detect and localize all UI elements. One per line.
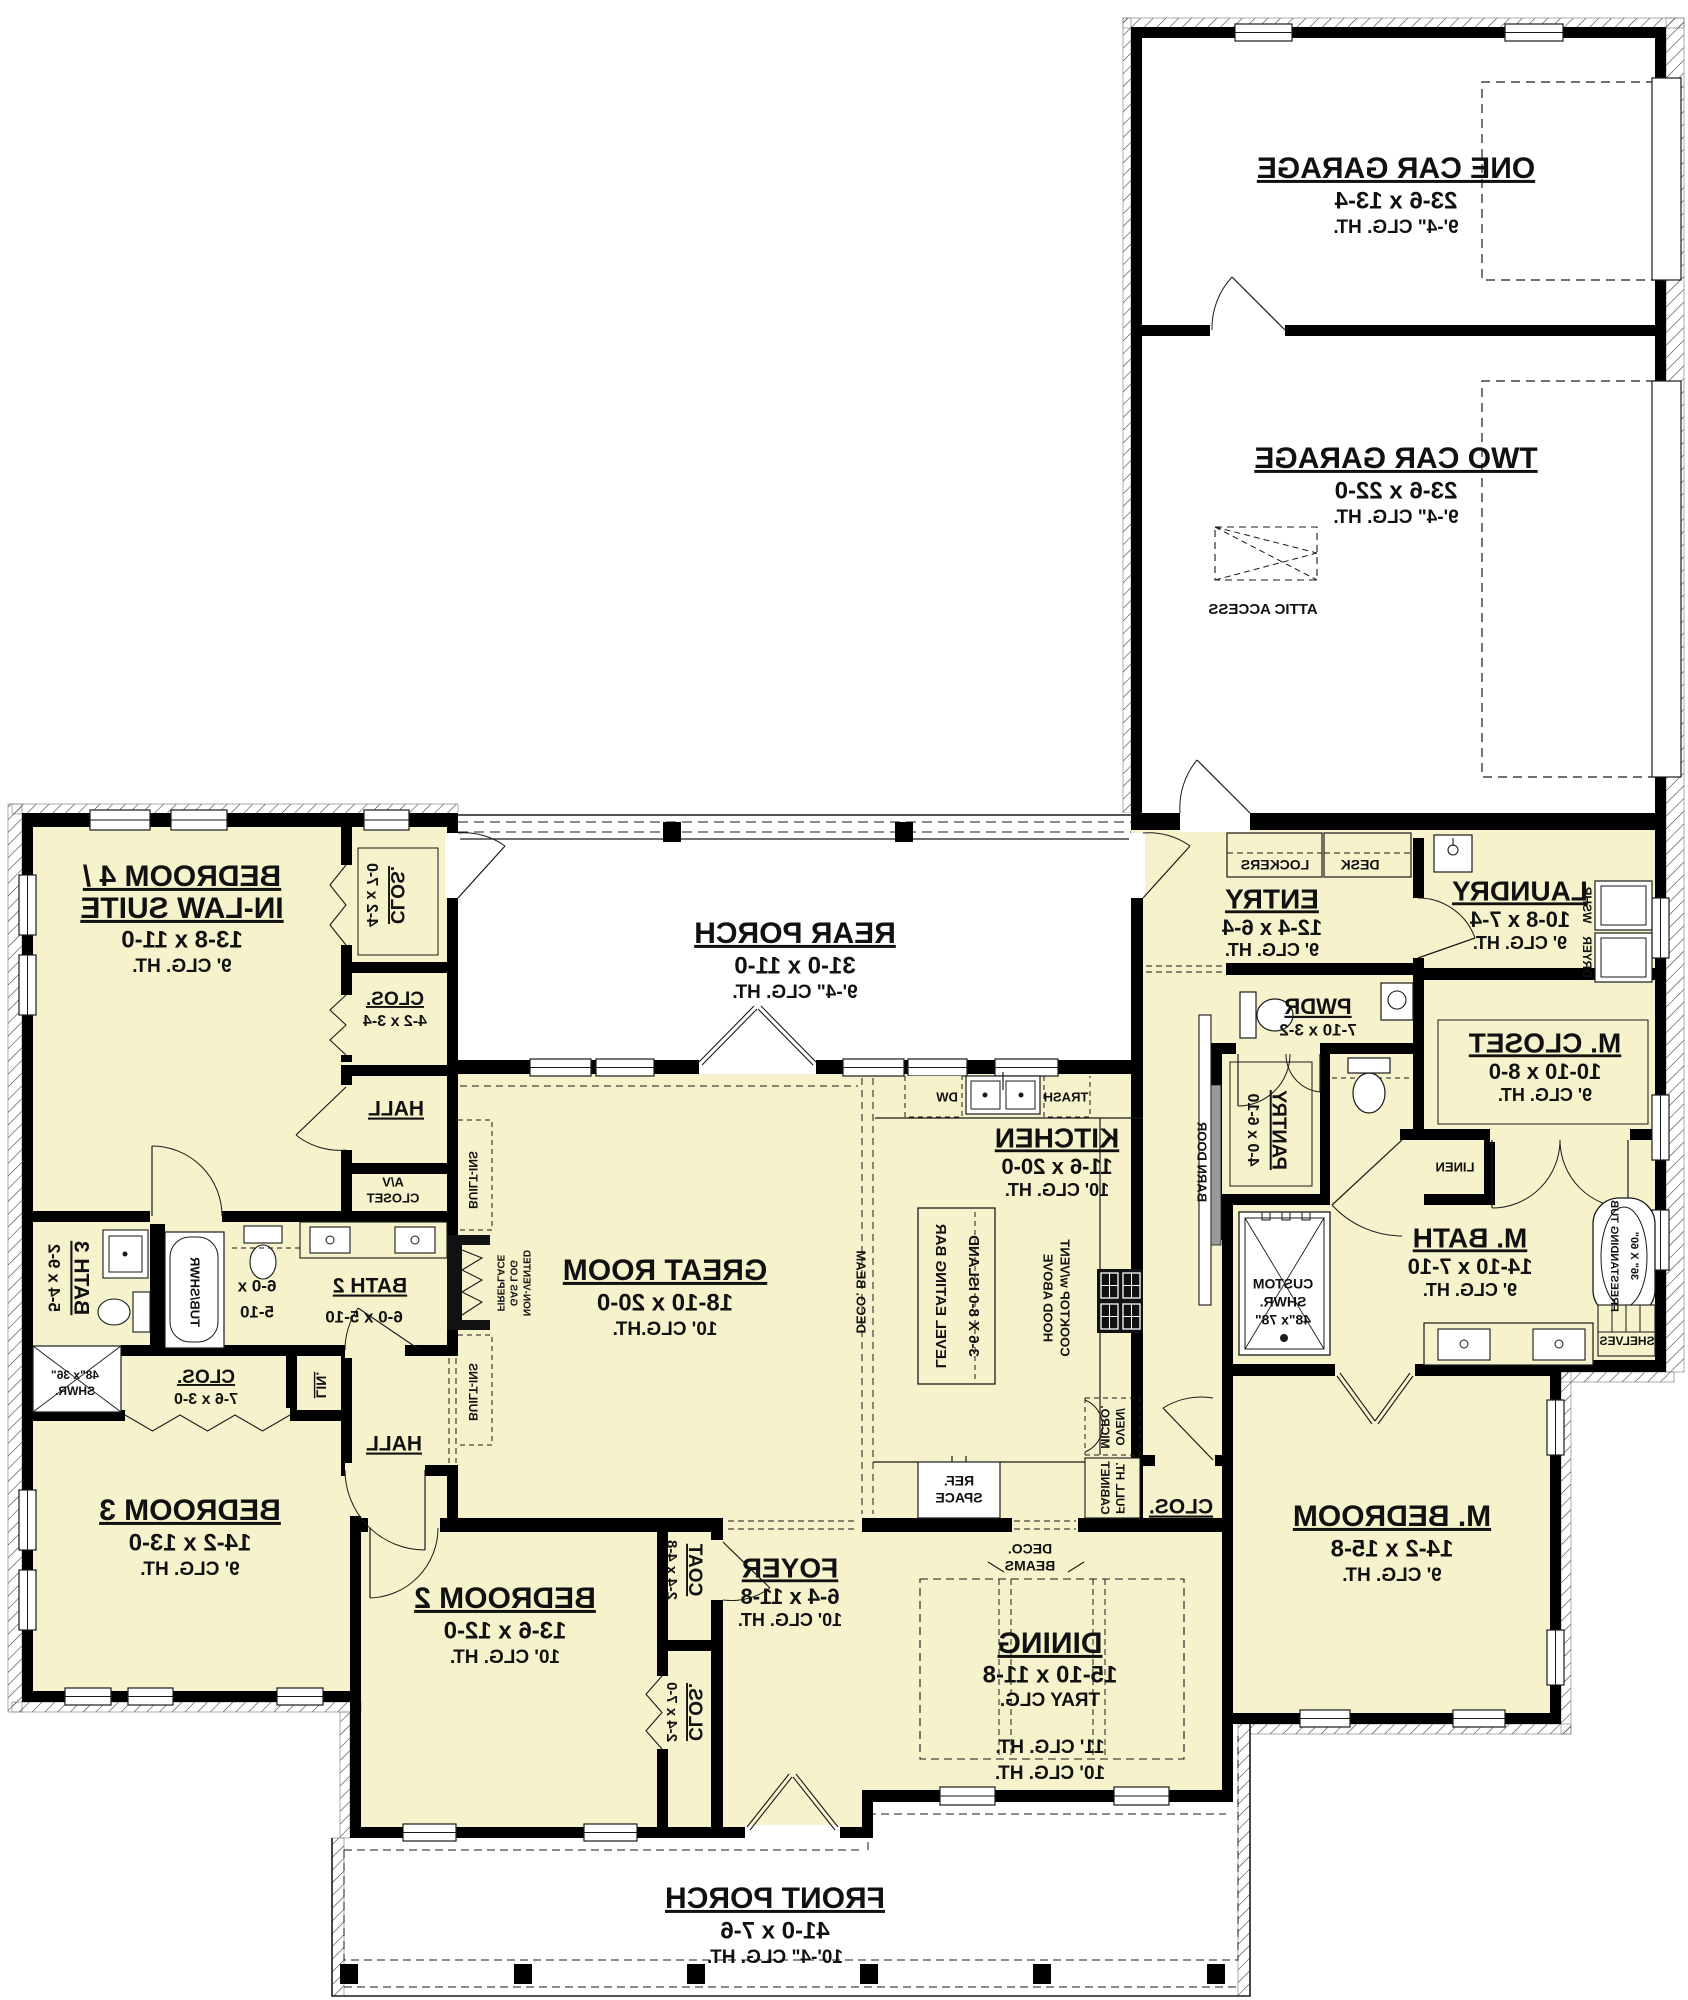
svg-text:TWO CAR GARAGE: TWO CAR GARAGE [1254, 442, 1537, 475]
svg-text:6-0 x 5-10: 6-0 x 5-10 [325, 1307, 403, 1326]
svg-text:HOOD ABOVE: HOOD ABOVE [1041, 1253, 1056, 1342]
svg-text:BATH 3: BATH 3 [69, 1241, 92, 1315]
svg-text:M. CLOSET: M. CLOSET [1469, 1027, 1621, 1058]
svg-text:FULL HT.: FULL HT. [1113, 1462, 1127, 1514]
svg-text:REAR PORCH: REAR PORCH [694, 917, 896, 950]
svg-text:DW: DW [935, 1089, 957, 1104]
svg-text:14-10 x 7-10: 14-10 x 7-10 [1408, 1254, 1533, 1279]
svg-text:6-4 x 11-8: 6-4 x 11-8 [740, 1584, 839, 1609]
svg-text:48"x 36": 48"x 36" [51, 1368, 99, 1382]
svg-text:7-6 x 3-0: 7-6 x 3-0 [174, 1391, 238, 1408]
svg-text:48"x 78": 48"x 78" [1255, 1312, 1311, 1328]
svg-text:12-4 x 6-4: 12-4 x 6-4 [1221, 915, 1322, 940]
svg-text:14-2 x 15-8: 14-2 x 15-8 [1331, 1535, 1454, 1562]
svg-text:BEAMS: BEAMS [1005, 1558, 1056, 1574]
svg-text:4-2 x 7-0: 4-2 x 7-0 [363, 863, 380, 927]
svg-text:HALL: HALL [368, 1098, 424, 1121]
svg-text:NON-VENTED: NON-VENTED [520, 1250, 531, 1316]
svg-text:BATH 2: BATH 2 [333, 1275, 407, 1298]
svg-text:CLOS.: CLOS. [684, 1683, 705, 1741]
svg-text:36" X 60": 36" X 60" [1628, 1232, 1640, 1280]
svg-text:BUILT-INS: BUILT-INS [466, 1363, 480, 1421]
svg-text:SHWR.: SHWR. [55, 1384, 95, 1398]
svg-text:31-0 x 11-0: 31-0 x 11-0 [734, 952, 855, 979]
svg-text:9' CLG. HT.: 9' CLG. HT. [132, 956, 232, 977]
svg-text:41-0 x 7-6: 41-0 x 7-6 [720, 1917, 829, 1944]
svg-text:10-8 x 7-4: 10-8 x 7-4 [1469, 907, 1570, 932]
svg-text:WSHR: WSHR [1580, 886, 1594, 923]
svg-text:TRAY CLG.: TRAY CLG. [1000, 1690, 1100, 1711]
svg-text:2-4 x 7-0: 2-4 x 7-0 [663, 1682, 680, 1742]
svg-text:9'-4" CLG. HT.: 9'-4" CLG. HT. [732, 982, 857, 1003]
svg-text:SHELVES: SHELVES [1599, 1334, 1654, 1348]
svg-text:M. BATH: M. BATH [1413, 1222, 1528, 1253]
svg-text:6-0 x: 6-0 x [237, 1276, 276, 1295]
svg-text:10'-4" CLG. HT.: 10'-4" CLG. HT. [707, 1947, 843, 1968]
svg-text:LAUNDRY: LAUNDRY [1452, 875, 1588, 906]
svg-text:9'-4" CLG. HT.: 9'-4" CLG. HT. [1333, 217, 1458, 238]
svg-text:HALL: HALL [366, 1433, 422, 1456]
svg-text:13-6 x 12-0: 13-6 x 12-0 [444, 1617, 567, 1644]
svg-text:CLOS.: CLOS. [366, 989, 424, 1010]
svg-text:COAT: COAT [684, 1543, 705, 1596]
svg-text:9' CLG. HT.: 9' CLG. HT. [1225, 940, 1319, 960]
svg-text:9' CLG. HT.: 9' CLG. HT. [1473, 933, 1567, 953]
svg-text:DINING: DINING [998, 1627, 1103, 1660]
svg-text:LEVEL EATING BAR: LEVEL EATING BAR [932, 1224, 949, 1369]
svg-text:BEDROOM 3: BEDROOM 3 [99, 1494, 281, 1527]
svg-text:5-4 x 9-2: 5-4 x 9-2 [45, 1244, 64, 1312]
svg-text:TRASH: TRASH [1044, 1089, 1089, 1104]
svg-text:CUSTOM: CUSTOM [1253, 1276, 1313, 1292]
svg-text:LOCKERS: LOCKERS [1241, 857, 1309, 873]
svg-text:REF.: REF. [944, 1473, 974, 1489]
svg-text:A/V: A/V [382, 1174, 404, 1189]
svg-text:KITCHEN: KITCHEN [995, 1122, 1119, 1153]
svg-text:CLOS.: CLOS. [177, 1367, 235, 1388]
svg-text:OVEN/: OVEN/ [1113, 1408, 1127, 1446]
svg-text:9' CLG. HT.: 9' CLG. HT. [140, 1559, 240, 1580]
svg-text:10-10 x 8-0: 10-10 x 8-0 [1489, 1059, 1602, 1084]
svg-text:DRYER: DRYER [1580, 936, 1594, 978]
svg-text:15-10 x 11-8: 15-10 x 11-8 [983, 1661, 1118, 1688]
svg-text:DECO.: DECO. [1008, 1541, 1052, 1557]
svg-text:9'-4" CLG. HT.: 9'-4" CLG. HT. [1333, 507, 1458, 528]
svg-text:CLOS.: CLOS. [1149, 1496, 1213, 1519]
svg-text:11-6 x 20-0: 11-6 x 20-0 [1001, 1154, 1112, 1179]
svg-text:11' CLG. HT.: 11' CLG. HT. [995, 1737, 1104, 1758]
svg-text:GAS LOG: GAS LOG [507, 1260, 518, 1306]
svg-text:2-4 x 4-8: 2-4 x 4-8 [663, 1540, 680, 1600]
svg-text:BEDROOM 2: BEDROOM 2 [414, 1582, 596, 1615]
svg-text:IN-LAW SUITE: IN-LAW SUITE [80, 892, 283, 925]
svg-text:CLOSET: CLOSET [367, 1190, 420, 1205]
svg-text:FRONT PORCH: FRONT PORCH [665, 1882, 885, 1915]
svg-text:DESK: DESK [1341, 857, 1380, 873]
svg-text:14-2 x 13-0: 14-2 x 13-0 [129, 1529, 252, 1556]
svg-text:9' CLG. HT.: 9' CLG. HT. [1423, 1280, 1517, 1300]
svg-text:7-10 x 3-2: 7-10 x 3-2 [1279, 1020, 1357, 1039]
svg-text:FREESTANDING TUB: FREESTANDING TUB [1608, 1200, 1620, 1312]
svg-text:3-6 X 8-0 ISLAND: 3-6 X 8-0 ISLAND [965, 1235, 982, 1357]
svg-text:PANTRY: PANTRY [1268, 1089, 1290, 1170]
svg-text:LIN.: LIN. [313, 1372, 329, 1398]
svg-text:BUILT-INS: BUILT-INS [466, 1151, 480, 1209]
svg-text:10' CLG. HT.: 10' CLG. HT. [995, 1763, 1105, 1784]
svg-text:23-6 x 22-0: 23-6 x 22-0 [1335, 477, 1458, 504]
svg-text:CABINET: CABINET [1098, 1461, 1112, 1515]
svg-text:COOKTOP w/VENT: COOKTOP w/VENT [1058, 1239, 1073, 1356]
svg-text:FIREPLACE: FIREPLACE [494, 1254, 505, 1311]
svg-text:10' CLG.HT.: 10' CLG.HT. [613, 1319, 718, 1340]
svg-text:ENTRY: ENTRY [1225, 883, 1319, 914]
svg-text:FOYER: FOYER [742, 1552, 838, 1583]
svg-text:13-8 x 11-0: 13-8 x 11-0 [121, 926, 242, 953]
svg-text:DECO. BEAM: DECO. BEAM [854, 1250, 869, 1333]
svg-text:10' CLG. HT.: 10' CLG. HT. [738, 1610, 842, 1630]
svg-text:M. BEDROOM: M. BEDROOM [1293, 1500, 1491, 1533]
svg-text:TUB/SHWR: TUB/SHWR [188, 1256, 203, 1327]
svg-text:10' CLG. HT.: 10' CLG. HT. [1005, 1180, 1109, 1200]
svg-text:9' CLG. HT.: 9' CLG. HT. [1342, 1565, 1442, 1586]
svg-text:LINEN: LINEN [1436, 1159, 1475, 1174]
svg-text:9' CLG. HT.: 9' CLG. HT. [1498, 1085, 1592, 1105]
svg-text:4-2 x 3-4: 4-2 x 3-4 [363, 1013, 427, 1030]
svg-text:MICRO.: MICRO. [1098, 1405, 1112, 1448]
svg-text:23-6 x 13-4: 23-6 x 13-4 [1334, 187, 1457, 214]
svg-text:18-10 x 20-0: 18-10 x 20-0 [597, 1289, 733, 1316]
svg-text:SPACE: SPACE [935, 1490, 982, 1506]
svg-text:SHWR.: SHWR. [1260, 1294, 1307, 1310]
svg-text:GREAT ROOM: GREAT ROOM [563, 1254, 767, 1287]
svg-text:PWDR: PWDR [1284, 994, 1351, 1019]
svg-text:10' CLG. HT.: 10' CLG. HT. [450, 1647, 560, 1668]
svg-text:ONE CAR GARAGE: ONE CAR GARAGE [1257, 152, 1535, 185]
svg-text:4-0 x 6-10: 4-0 x 6-10 [1244, 1093, 1261, 1166]
svg-text:5-10: 5-10 [240, 1302, 274, 1321]
svg-text:ATTIC ACCESS: ATTIC ACCESS [1208, 601, 1317, 618]
svg-text:BEDROOM 4 /: BEDROOM 4 / [82, 860, 281, 893]
svg-text:BARN DOOR: BARN DOOR [1195, 1121, 1210, 1202]
svg-text:CLOS.: CLOS. [386, 866, 407, 924]
